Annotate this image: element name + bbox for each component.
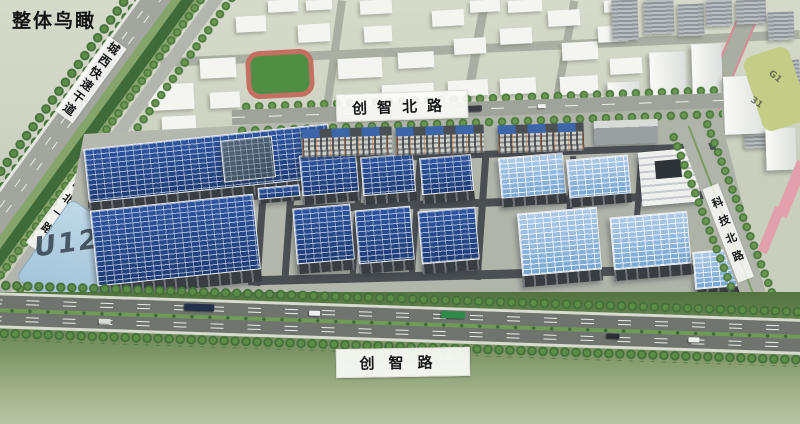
factory-building — [566, 154, 632, 207]
vehicle — [688, 337, 699, 342]
solar-panel-roof — [419, 154, 474, 195]
vehicle — [606, 333, 619, 338]
factory-building — [90, 194, 262, 299]
dormitory-block — [396, 124, 485, 155]
highrise-tower — [677, 4, 704, 37]
background-building — [548, 9, 581, 27]
factory-building — [354, 206, 415, 275]
dormitory-block — [302, 126, 393, 157]
background-building — [306, 0, 332, 11]
background-building — [360, 0, 393, 15]
background-building — [454, 37, 487, 55]
aerial-rendering: 城西快速干道 西北一路 U12 科技北路 — [0, 0, 800, 424]
factory-building — [517, 207, 603, 288]
background-building — [432, 9, 465, 27]
factory-building — [498, 152, 567, 207]
highrise-tower — [643, 0, 674, 35]
solar-panel-roof — [354, 206, 414, 265]
dormitory-facade — [396, 133, 485, 155]
factory-building — [419, 154, 475, 204]
vehicle — [441, 311, 465, 319]
background-building — [470, 0, 501, 13]
background-building — [338, 57, 383, 79]
view-title: 整体鸟瞰 — [12, 6, 96, 33]
factory-building — [360, 153, 417, 205]
solar-panel-roof — [517, 207, 602, 277]
factory-building — [299, 151, 360, 206]
car — [538, 104, 546, 108]
vehicle — [184, 303, 214, 311]
background-building — [364, 25, 393, 42]
background-building — [610, 57, 643, 75]
highrise-tower — [611, 0, 638, 40]
solar-panel-roof — [292, 204, 355, 265]
background-building — [500, 27, 533, 45]
solar-panel-roof — [299, 151, 359, 197]
vehicle — [99, 319, 111, 324]
vehicle — [309, 311, 320, 316]
factory-building — [292, 204, 356, 275]
glass-roof-building — [220, 135, 276, 182]
highrise-tower — [768, 12, 795, 41]
background-building — [562, 41, 599, 61]
background-building — [508, 0, 543, 13]
dormitory-block — [498, 123, 585, 154]
factory-building — [417, 207, 480, 275]
solar-panel-roof — [498, 152, 566, 199]
solar-panel-roof — [566, 154, 631, 198]
highrise-tower — [706, 0, 733, 26]
dormitory-facade — [302, 135, 393, 157]
road-label-chuangzhi: 创智路 — [336, 347, 470, 378]
dormitory-facade — [498, 132, 585, 154]
truck — [468, 105, 482, 111]
road-label-chuangzhi-north: 创智北路 — [336, 90, 469, 123]
highrise-tower — [736, 0, 767, 25]
solar-panel-roof — [360, 153, 416, 196]
background-building — [398, 51, 435, 69]
solar-panel-roof — [417, 207, 479, 265]
